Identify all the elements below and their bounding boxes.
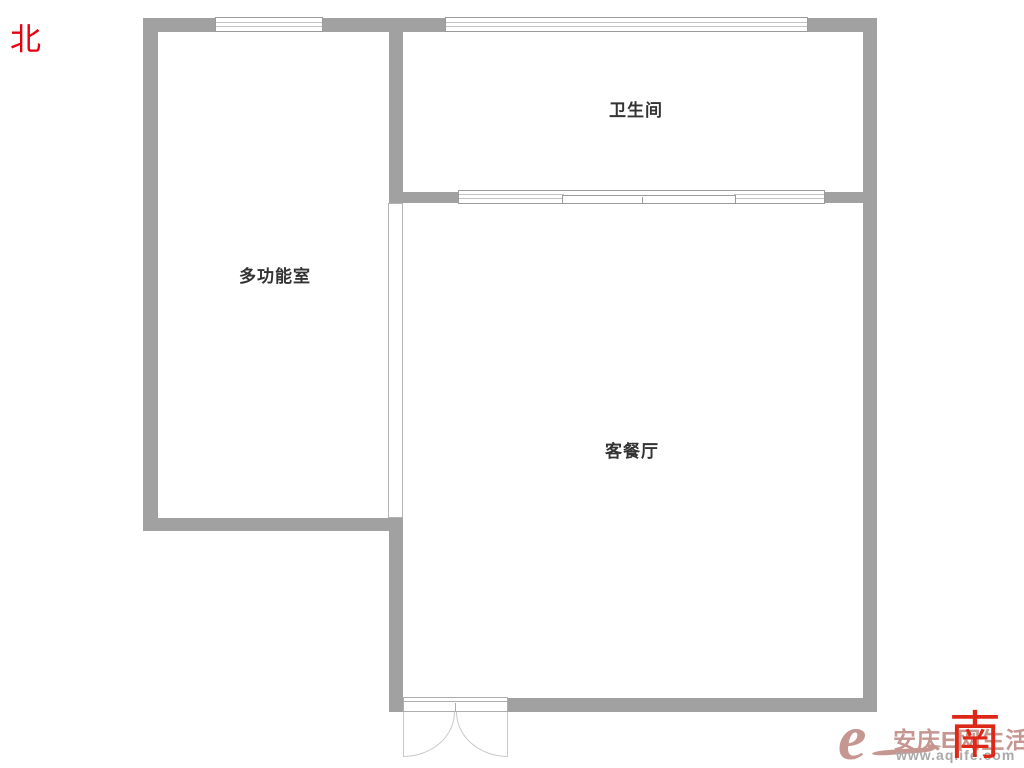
wall-south-multi-function-room — [143, 518, 403, 531]
window-line — [216, 22, 322, 23]
floor-plan: 北 卫生间 多功能室 客餐厅 e — [0, 0, 1024, 768]
glass-partition — [388, 203, 403, 518]
sliding-window-center-tick — [642, 197, 643, 204]
room-label-multi-function-room: 多功能室 — [205, 262, 345, 287]
wall-west — [143, 18, 158, 531]
window-line — [446, 26, 807, 27]
wall-divider-upper — [389, 32, 403, 192]
entry-door-frame-icon — [403, 697, 508, 712]
wall-east — [863, 18, 877, 712]
multi-function-room-window-icon — [215, 17, 323, 32]
sliding-window-middle-leaf — [562, 195, 736, 204]
door-center-tick — [455, 703, 456, 711]
bathroom-window-icon — [445, 17, 808, 32]
entry-door-left-leaf-icon — [403, 712, 455, 757]
living-room-sliding-window-icon — [458, 190, 825, 204]
window-line — [216, 26, 322, 27]
room-label-living-dining-room: 客餐厅 — [571, 437, 693, 462]
door-frame-line — [404, 701, 507, 702]
sliding-window-right-pane — [734, 191, 824, 203]
window-line — [446, 22, 807, 23]
room-label-bathroom: 卫生间 — [575, 96, 697, 121]
compass-south-label: 南 — [949, 712, 1001, 764]
wall-divider-lower — [389, 531, 403, 698]
sliding-window-left-pane — [459, 191, 564, 203]
compass-north-label: 北 — [10, 24, 41, 55]
entry-door-right-leaf-icon — [456, 712, 508, 757]
watermark-logo-e-icon: e — [838, 706, 866, 768]
